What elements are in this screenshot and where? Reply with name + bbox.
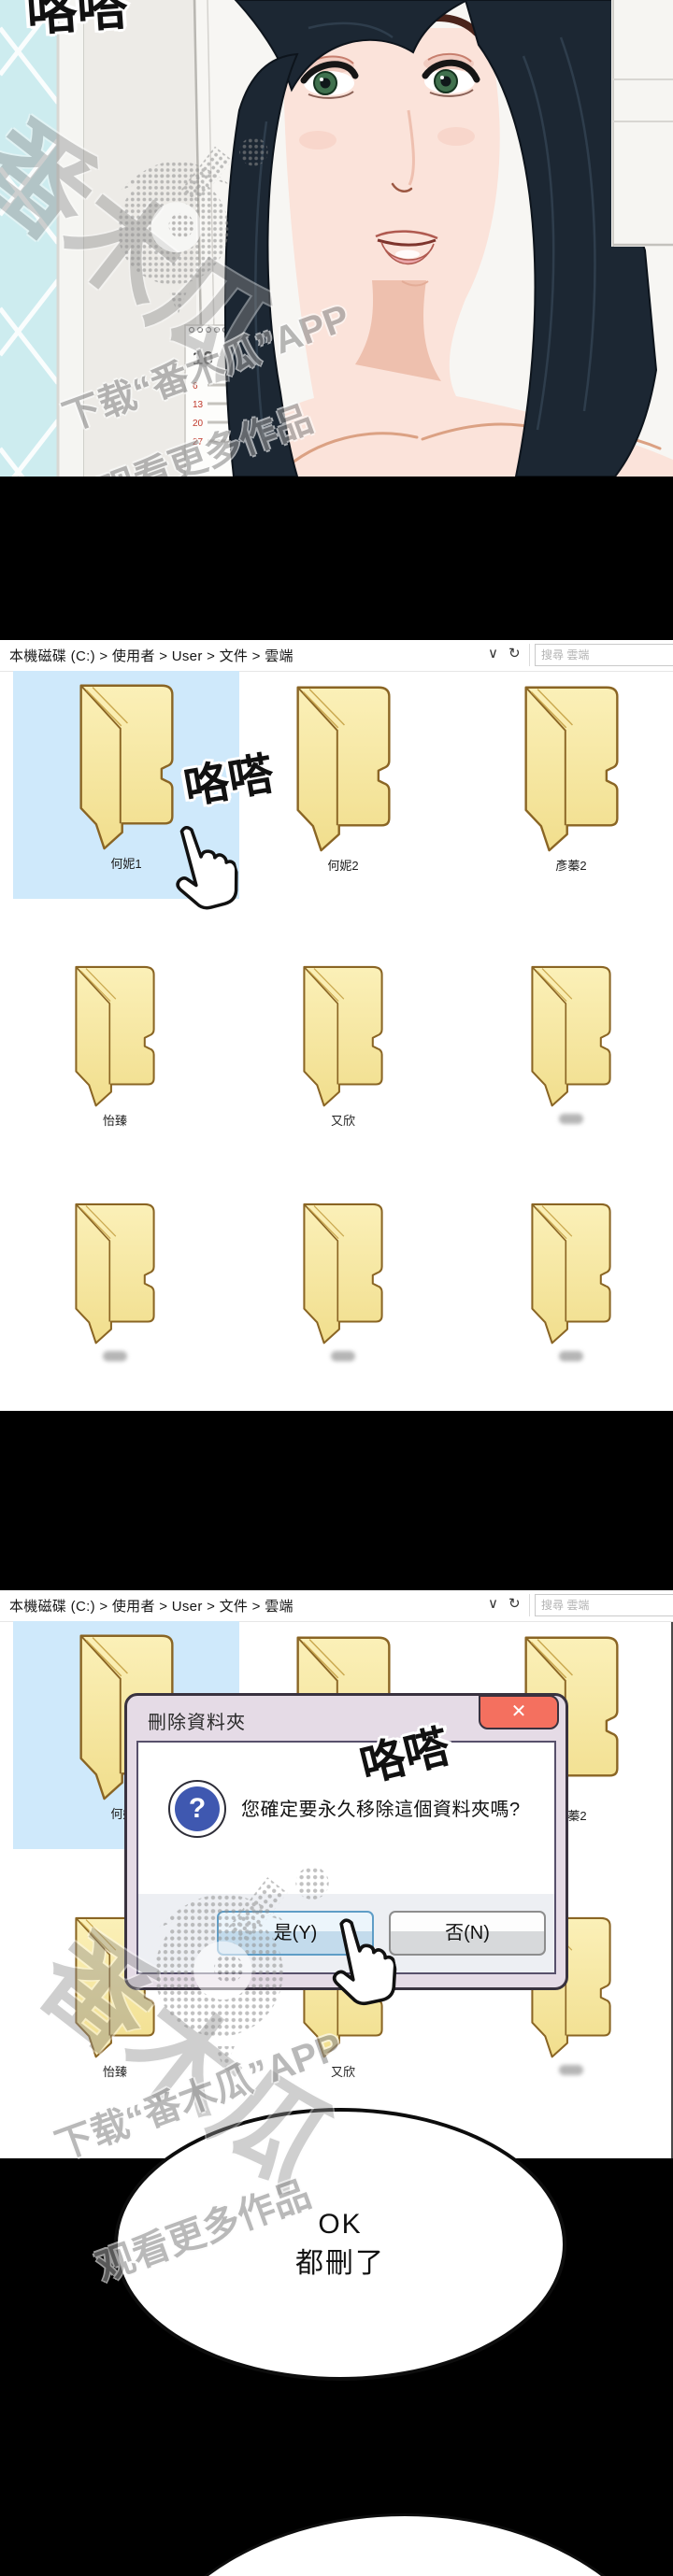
- svg-text:10: 10: [193, 349, 213, 369]
- folder-icon: [65, 962, 165, 1107]
- folder-icon: [513, 682, 630, 852]
- refresh-icon[interactable]: ↻: [508, 645, 521, 662]
- blurred-label: [103, 1351, 127, 1361]
- dialog-message: 您確定要永久移除這個資料夾嗎?: [241, 1794, 521, 1821]
- folder-label: 彥蓁2: [469, 856, 673, 874]
- folder-tile-blurred[interactable]: [13, 1200, 217, 1366]
- breadcrumb[interactable]: 本機磁碟 (C:) > 使用者 > User > 文件 > 雲端: [9, 1596, 294, 1615]
- speech-line: OK: [318, 2205, 362, 2244]
- chevron-down-icon[interactable]: ∨: [488, 1595, 498, 1612]
- folder-icon: [294, 1200, 393, 1345]
- svg-text:13: 13: [193, 400, 204, 410]
- folder-label: 怡臻: [13, 2062, 217, 2080]
- blurred-label: [331, 1351, 355, 1361]
- breadcrumb[interactable]: 本機磁碟 (C:) > 使用者 > User > 文件 > 雲端: [9, 646, 294, 665]
- close-button[interactable]: ✕: [479, 1695, 559, 1729]
- sfx-partial-top: 咯嗒: [23, 0, 129, 46]
- folder-tile[interactable]: 彥蓁2: [469, 671, 673, 874]
- blurred-label: [559, 2065, 583, 2075]
- no-button[interactable]: 否(N): [389, 1911, 546, 1956]
- svg-text:6: 6: [193, 381, 198, 391]
- folder-tile[interactable]: 怡臻: [13, 962, 217, 1129]
- folder-label: 又欣: [241, 2062, 445, 2080]
- search-input[interactable]: [535, 644, 673, 666]
- folder-icon: [68, 680, 185, 850]
- comic-art-panel: 10 6 13 20 27: [0, 0, 673, 477]
- folder-tile-blurred[interactable]: [469, 962, 673, 1129]
- speech-line: 都刪了: [295, 2244, 385, 2284]
- question-icon: ?: [168, 1780, 226, 1838]
- divider: [529, 644, 530, 666]
- speech-bubble: OK 都刪了: [114, 2108, 566, 2381]
- folder-icon: [285, 682, 402, 852]
- folder-icon: [294, 962, 393, 1107]
- shelf-corner: [611, 0, 673, 247]
- blurred-label: [559, 1114, 583, 1124]
- file-explorer-1: 本機磁碟 (C:) > 使用者 > User > 文件 > 雲端 ∨ ↻ 何妮1…: [0, 640, 673, 1411]
- folder-label: 又欣: [241, 1111, 445, 1129]
- woman-illustration: 10 6 13 20 27: [0, 0, 673, 477]
- folder-tile[interactable]: 又欣: [241, 962, 445, 1129]
- svg-text:27: 27: [193, 437, 204, 448]
- comic-page: 10 6 13 20 27: [0, 0, 673, 2576]
- search-input[interactable]: [535, 1594, 673, 1616]
- folder-label: 何妮2: [241, 856, 445, 874]
- folder-icon: [65, 1200, 165, 1345]
- file-explorer-2: 本機磁碟 (C:) > 使用者 > User > 文件 > 雲端 ∨ ↻ 何妮1…: [0, 1590, 673, 2158]
- chevron-down-icon[interactable]: ∨: [488, 645, 498, 662]
- dialog-title[interactable]: 刪除資料夾: [148, 1707, 246, 1734]
- speech-bubble-partial: [126, 2513, 673, 2576]
- svg-text:20: 20: [193, 419, 204, 429]
- folder-tile-blurred[interactable]: [241, 1200, 445, 1366]
- address-bar-2: 本機磁碟 (C:) > 使用者 > User > 文件 > 雲端 ∨ ↻: [0, 1590, 673, 1622]
- folder-icon: [522, 962, 621, 1107]
- teal-wall: [0, 0, 58, 477]
- refresh-icon[interactable]: ↻: [508, 1595, 521, 1612]
- folder-tile-blurred[interactable]: [469, 1200, 673, 1366]
- folder-icon: [522, 1200, 621, 1345]
- address-bar-1: 本機磁碟 (C:) > 使用者 > User > 文件 > 雲端 ∨ ↻: [0, 640, 673, 672]
- blurred-label: [559, 1351, 583, 1361]
- folder-label: 怡臻: [13, 1111, 217, 1129]
- divider: [529, 1594, 530, 1616]
